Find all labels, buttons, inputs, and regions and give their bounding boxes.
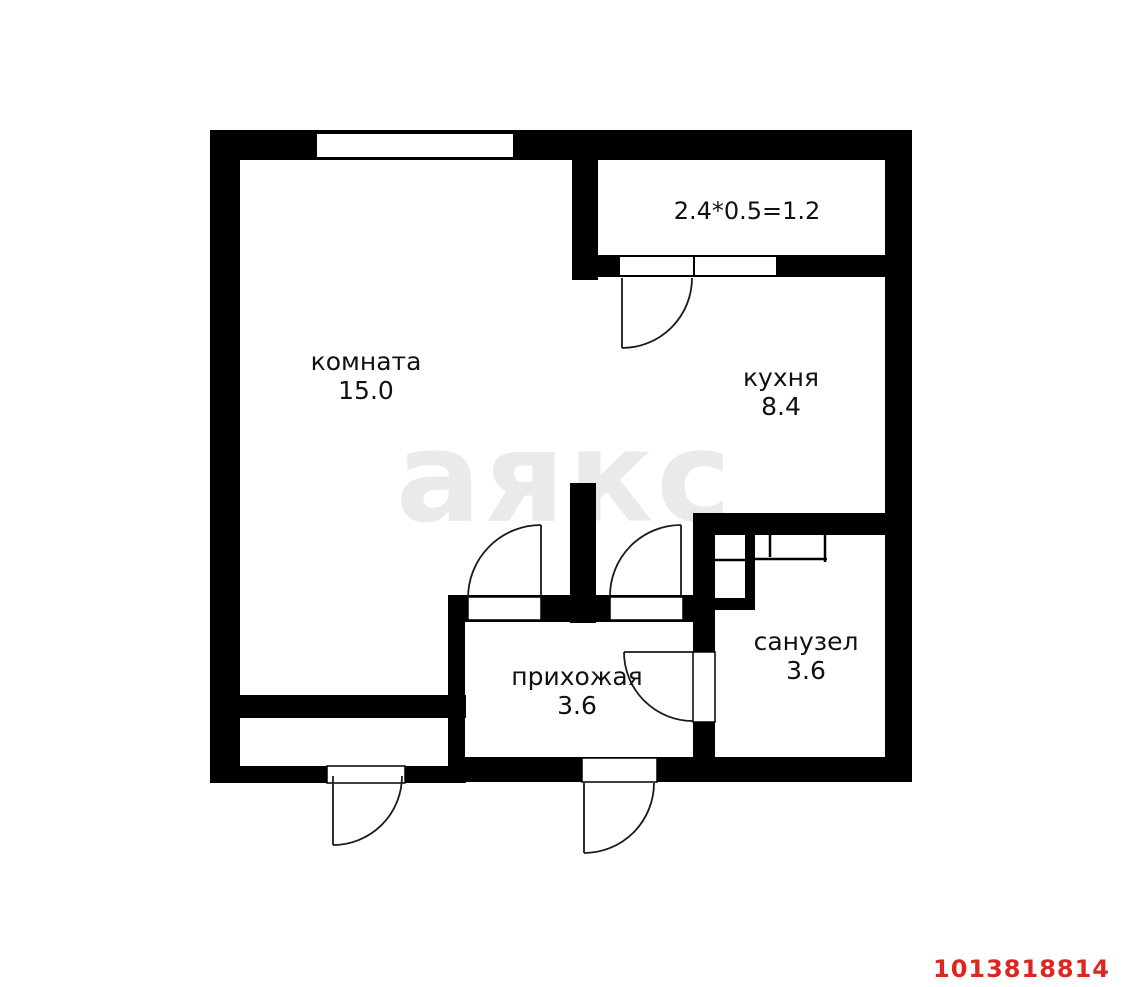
entrance-door-sill bbox=[582, 758, 657, 782]
wall-room-bottom bbox=[210, 695, 466, 718]
wall-left bbox=[210, 130, 240, 783]
kitchen-door-arc bbox=[610, 525, 681, 596]
room-area: 3.6 bbox=[754, 656, 859, 685]
exterior-left-door bbox=[333, 776, 402, 845]
entrance-door bbox=[584, 783, 654, 853]
room-window bbox=[316, 133, 514, 158]
wall-right bbox=[885, 130, 912, 780]
balcony-area-formula: 2.4*0.5=1.2 bbox=[674, 197, 821, 226]
room-door-sill bbox=[468, 597, 541, 620]
kitchen-door-sill bbox=[610, 597, 683, 620]
room-name: кухня bbox=[743, 363, 819, 392]
room-name: прихожая bbox=[511, 662, 642, 691]
exterior-door-sill bbox=[327, 766, 405, 783]
room-area: 3.6 bbox=[511, 691, 642, 720]
room-name: санузел bbox=[754, 627, 859, 656]
floor-plan: аякс bbox=[0, 0, 1128, 987]
balcony-door-window-unit bbox=[619, 256, 777, 276]
room-label-living: комната 15.0 bbox=[311, 347, 422, 405]
wall-hallway-left bbox=[448, 595, 465, 783]
exterior-left-door-arc bbox=[333, 776, 402, 845]
wall-bottom-right bbox=[448, 757, 912, 782]
balcony-door bbox=[622, 278, 692, 348]
floor-plan-drawing bbox=[0, 0, 1128, 987]
wall-kitchen-bath-divider bbox=[693, 513, 885, 535]
kitchen-door bbox=[610, 525, 681, 596]
room-label-hallway: прихожая 3.6 bbox=[511, 662, 642, 720]
vent-shaft-lines bbox=[713, 532, 827, 562]
bathroom-door-sill bbox=[693, 652, 715, 722]
vent-shaft-bottom-bar bbox=[693, 598, 755, 610]
listing-id: 1013818814 bbox=[933, 955, 1110, 983]
entrance-door-arc bbox=[584, 783, 654, 853]
room-label-bathroom: санузел 3.6 bbox=[754, 627, 859, 685]
room-area: 8.4 bbox=[743, 392, 819, 421]
room-name: комната bbox=[311, 347, 422, 376]
room-door-arc bbox=[468, 525, 541, 598]
room-label-kitchen: кухня 8.4 bbox=[743, 363, 819, 421]
room-door bbox=[468, 525, 541, 598]
balcony-door-arc bbox=[622, 278, 692, 348]
room-area: 15.0 bbox=[311, 376, 422, 405]
